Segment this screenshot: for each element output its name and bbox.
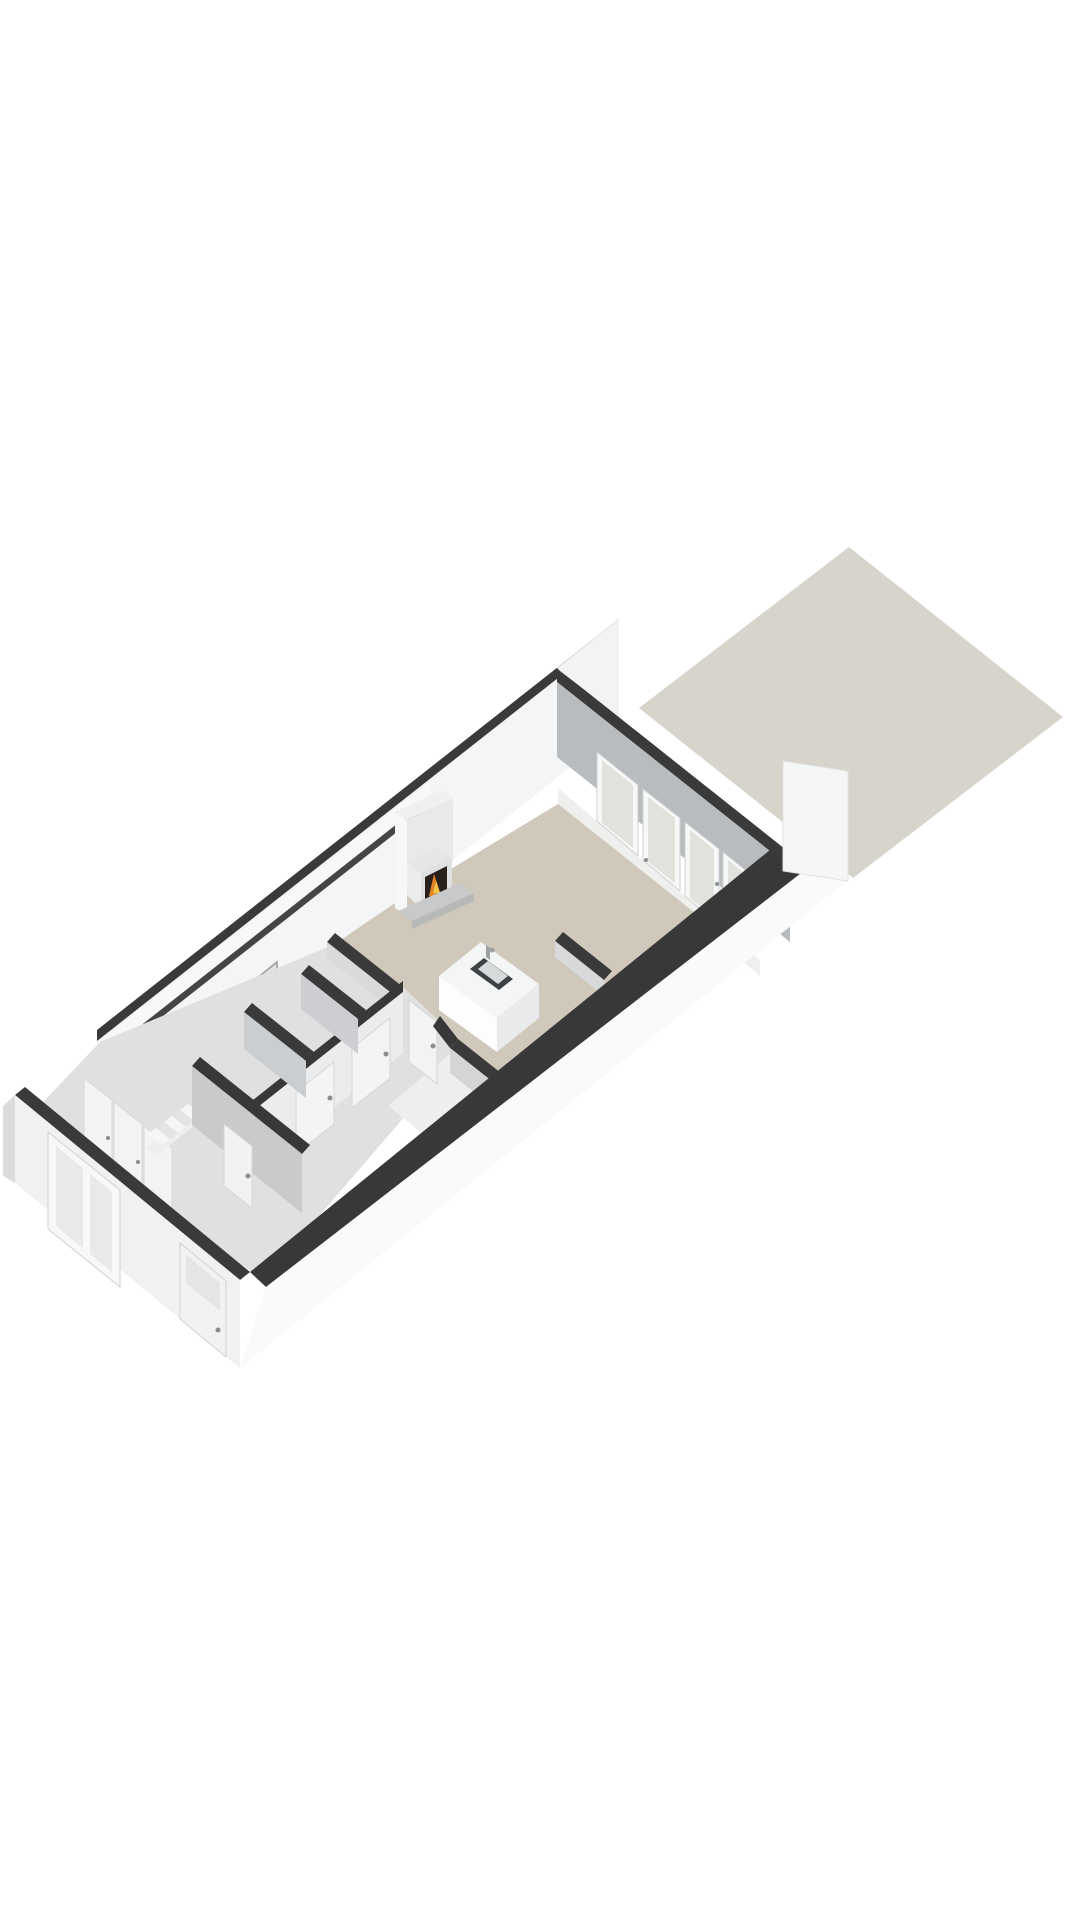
living-room-door-handle (431, 1044, 436, 1049)
hall-door-handle (246, 1174, 251, 1179)
floorplan-3d-canvas (0, 0, 1080, 1920)
fireplace-chimney-sw-face (395, 812, 407, 916)
terrace-door-handle-left (644, 858, 648, 862)
front-window-mullion (83, 1168, 90, 1262)
se-tall-wall-end-piece (783, 761, 848, 881)
west-corner-side-face (3, 1095, 15, 1183)
sink-faucet-spout (490, 948, 495, 953)
hall-closet-handle-2 (136, 1160, 140, 1164)
terrace-door-handle-right (715, 882, 719, 886)
hall-closet-handle-1 (106, 1136, 110, 1140)
floorplan-page (0, 0, 1080, 1920)
front-door-handle (216, 1328, 221, 1333)
corridor-door-2-handle (384, 1052, 389, 1057)
corridor-door-1-handle (328, 1096, 333, 1101)
